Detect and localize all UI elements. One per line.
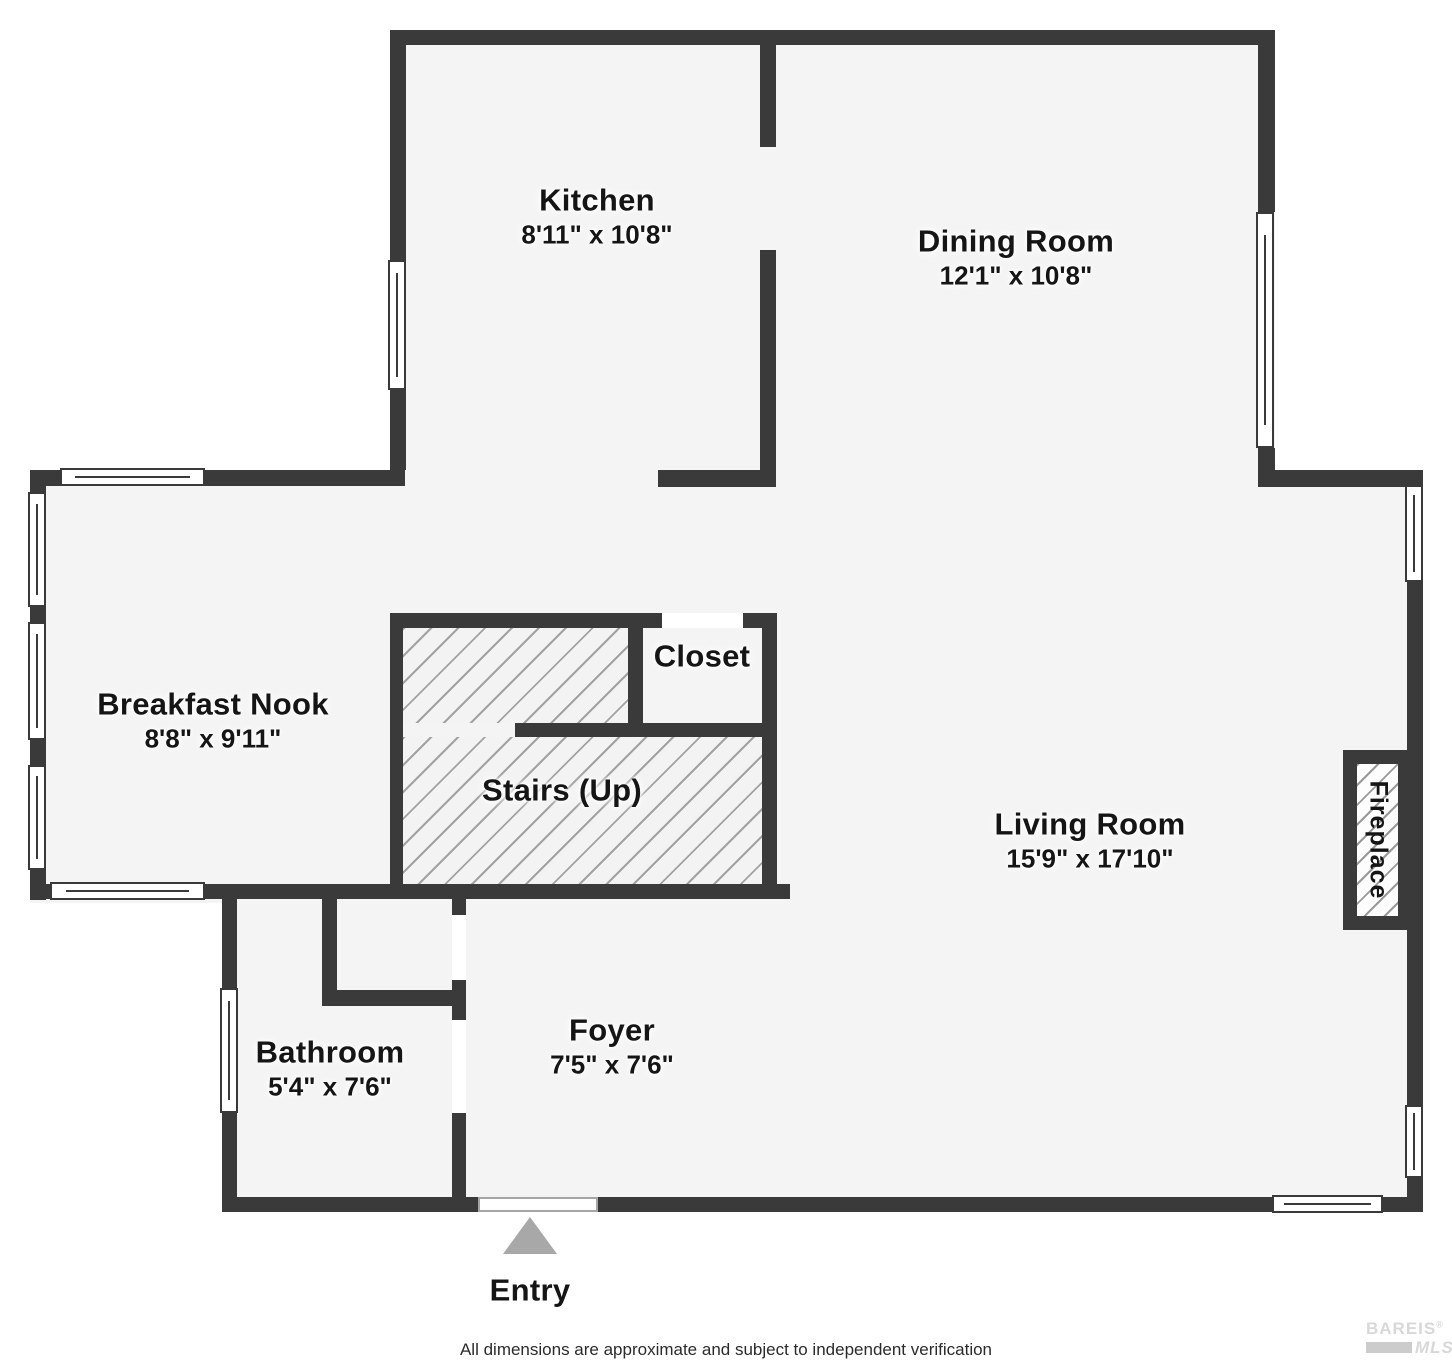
wall xyxy=(658,470,776,487)
logo-sub: MLS xyxy=(1415,1339,1452,1356)
door-opening xyxy=(662,613,743,628)
room-title: Living Room xyxy=(994,806,1185,843)
window xyxy=(28,622,46,740)
wall xyxy=(390,45,406,260)
room-label-fireplace: Fireplace xyxy=(1364,781,1393,900)
entry-label: Entry xyxy=(490,1273,571,1310)
room-title: Stairs (Up) xyxy=(482,773,642,810)
room-label-bathroom: Bathroom 5'4" x 7'6" xyxy=(256,1034,405,1101)
room-label-breakfast-nook: Breakfast Nook 8'8" x 9'11" xyxy=(97,686,329,753)
entry-door-opening xyxy=(478,1197,598,1212)
wall xyxy=(762,613,777,884)
room-label-dining-room: Dining Room 12'1" x 10'8" xyxy=(918,223,1114,290)
wall xyxy=(515,723,777,737)
wall xyxy=(322,990,452,1006)
bareis-mls-logo: BAREIS® MLS xyxy=(1366,1320,1452,1356)
window xyxy=(220,988,238,1113)
logo-name-row: BAREIS® xyxy=(1366,1320,1452,1337)
room-dims: 5'4" x 7'6" xyxy=(256,1071,405,1102)
room-dims: 12'1" x 10'8" xyxy=(918,260,1114,291)
window xyxy=(60,468,205,486)
window xyxy=(1405,1105,1423,1178)
wall xyxy=(452,899,466,915)
room-dims: 8'11" x 10'8" xyxy=(521,219,672,250)
wall xyxy=(390,390,406,470)
wall xyxy=(760,250,776,470)
window xyxy=(1405,485,1423,582)
room-title: Foyer xyxy=(550,1012,674,1049)
room-label-living-room: Living Room 15'9" x 17'10" xyxy=(994,806,1185,873)
wall xyxy=(1258,470,1422,487)
window xyxy=(1272,1195,1383,1213)
window xyxy=(28,492,46,607)
entry-arrow-icon xyxy=(503,1217,557,1254)
window xyxy=(28,765,46,870)
logo-sub-row: MLS xyxy=(1366,1339,1452,1356)
wall xyxy=(390,613,403,884)
room-dims: 8'8" x 9'11" xyxy=(97,723,329,754)
room-title: Kitchen xyxy=(521,182,672,219)
wall xyxy=(222,1197,478,1212)
stairs-hatching xyxy=(403,737,762,884)
floor-kitchen-dining xyxy=(390,30,1275,487)
logo-bar-icon xyxy=(1366,1342,1412,1353)
registered-mark-icon: ® xyxy=(1436,1319,1444,1329)
door-opening xyxy=(452,915,466,980)
room-label-kitchen: Kitchen 8'11" x 10'8" xyxy=(521,182,672,249)
room-label-foyer: Foyer 7'5" x 7'6" xyxy=(550,1012,674,1079)
window xyxy=(50,882,205,900)
entry-title: Entry xyxy=(490,1273,571,1310)
room-title: Breakfast Nook xyxy=(97,686,329,723)
wall xyxy=(452,980,466,1020)
room-label-stairs: Stairs (Up) xyxy=(482,773,642,810)
door-opening xyxy=(452,1020,466,1113)
room-dims: 7'5" x 7'6" xyxy=(550,1049,674,1080)
floor-plan: Kitchen 8'11" x 10'8" Dining Room 12'1" … xyxy=(0,0,1452,1371)
wall xyxy=(628,628,643,723)
room-title: Dining Room xyxy=(918,223,1114,260)
wall xyxy=(1258,45,1275,212)
room-title: Closet xyxy=(654,639,751,676)
room-label-closet: Closet xyxy=(654,639,751,676)
logo-name: BAREIS xyxy=(1366,1319,1436,1338)
stairs-hatching xyxy=(403,628,628,723)
window xyxy=(1256,212,1274,448)
wall xyxy=(1258,448,1275,470)
wall xyxy=(390,30,1275,45)
room-dims: 15'9" x 17'10" xyxy=(994,843,1185,874)
window xyxy=(388,260,406,390)
room-title: Bathroom xyxy=(256,1034,405,1071)
wall xyxy=(760,45,776,147)
disclaimer: All dimensions are approximate and subje… xyxy=(0,1340,1452,1360)
